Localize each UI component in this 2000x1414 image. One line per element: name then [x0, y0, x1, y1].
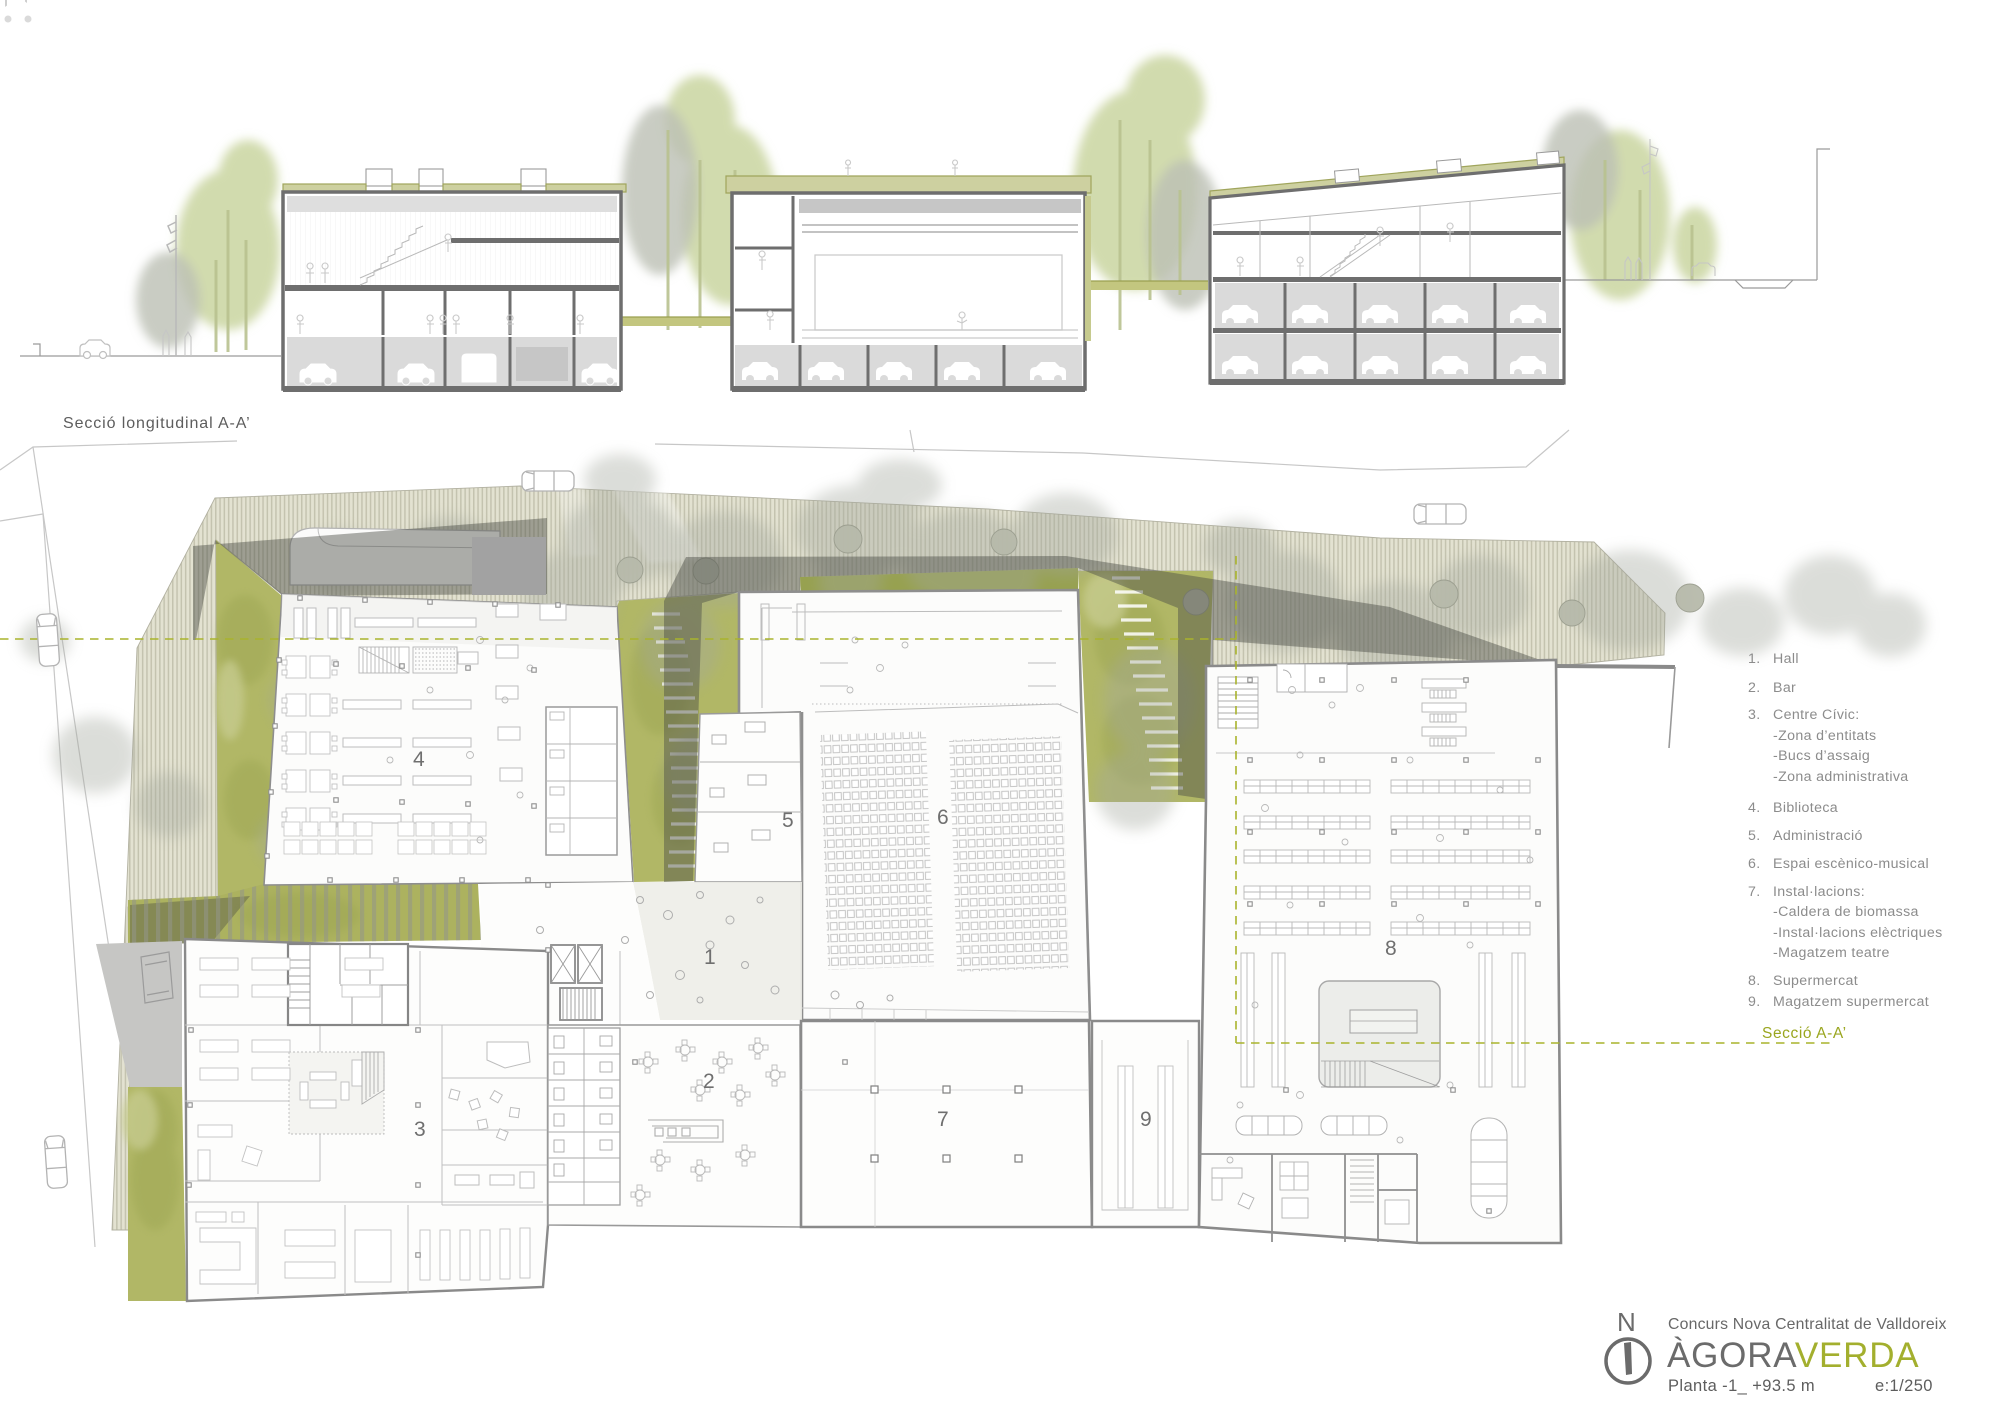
svg-text:-Zona d’entitats: -Zona d’entitats — [1773, 728, 1876, 744]
svg-text:Secció A-A’: Secció A-A’ — [1762, 1025, 1847, 1042]
svg-text:1.: 1. — [1748, 651, 1761, 667]
svg-text:4.: 4. — [1748, 800, 1761, 816]
svg-text:5.: 5. — [1748, 828, 1761, 844]
svg-text:Administració: Administració — [1773, 828, 1863, 844]
svg-text:Hall: Hall — [1773, 651, 1799, 667]
svg-text:N: N — [1617, 1307, 1636, 1337]
svg-text:9.: 9. — [1748, 994, 1761, 1010]
svg-text:Bar: Bar — [1773, 680, 1796, 696]
svg-text:Planta -1_ +93.5 m: Planta -1_ +93.5 m — [1668, 1377, 1815, 1395]
svg-text:4: 4 — [413, 748, 425, 771]
svg-text:3.: 3. — [1748, 707, 1761, 723]
svg-text:8: 8 — [1385, 937, 1397, 960]
svg-text:-Caldera de biomassa: -Caldera de biomassa — [1773, 904, 1919, 920]
svg-text:3: 3 — [414, 1118, 426, 1141]
svg-text:Concurs Nova Centralitat de Va: Concurs Nova Centralitat de Valldoreix — [1668, 1316, 1947, 1333]
svg-text:6.: 6. — [1748, 856, 1761, 872]
svg-text:e:1/250: e:1/250 — [1875, 1377, 1933, 1395]
svg-text:5: 5 — [782, 809, 794, 832]
svg-text:-Instal·lacions elèctriques: -Instal·lacions elèctriques — [1773, 925, 1943, 941]
svg-text:2.: 2. — [1748, 680, 1761, 696]
svg-text:Biblioteca: Biblioteca — [1773, 800, 1838, 816]
svg-text:9: 9 — [1140, 1108, 1152, 1131]
svg-text:8.: 8. — [1748, 973, 1761, 989]
svg-text:7: 7 — [937, 1108, 949, 1131]
svg-text:Supermercat: Supermercat — [1773, 973, 1858, 989]
svg-text:Secció longitudinal A-A’: Secció longitudinal A-A’ — [63, 415, 251, 432]
svg-text:7.: 7. — [1748, 884, 1761, 900]
svg-text:Magatzem supermercat: Magatzem supermercat — [1773, 994, 1929, 1010]
svg-text:Centre Cívic:: Centre Cívic: — [1773, 707, 1860, 723]
svg-text:-Magatzem teatre: -Magatzem teatre — [1773, 945, 1890, 961]
svg-text:6: 6 — [937, 806, 949, 829]
svg-text:-Bucs d’assaig: -Bucs d’assaig — [1773, 748, 1870, 764]
svg-text:Espai escènico-musical: Espai escènico-musical — [1773, 856, 1929, 872]
svg-text:Instal·lacions:: Instal·lacions: — [1773, 884, 1865, 900]
svg-text:-Zona administrativa: -Zona administrativa — [1773, 769, 1909, 785]
svg-text:2: 2 — [703, 1070, 715, 1093]
svg-text:ÀGORAVERDA: ÀGORAVERDA — [1667, 1336, 1919, 1375]
